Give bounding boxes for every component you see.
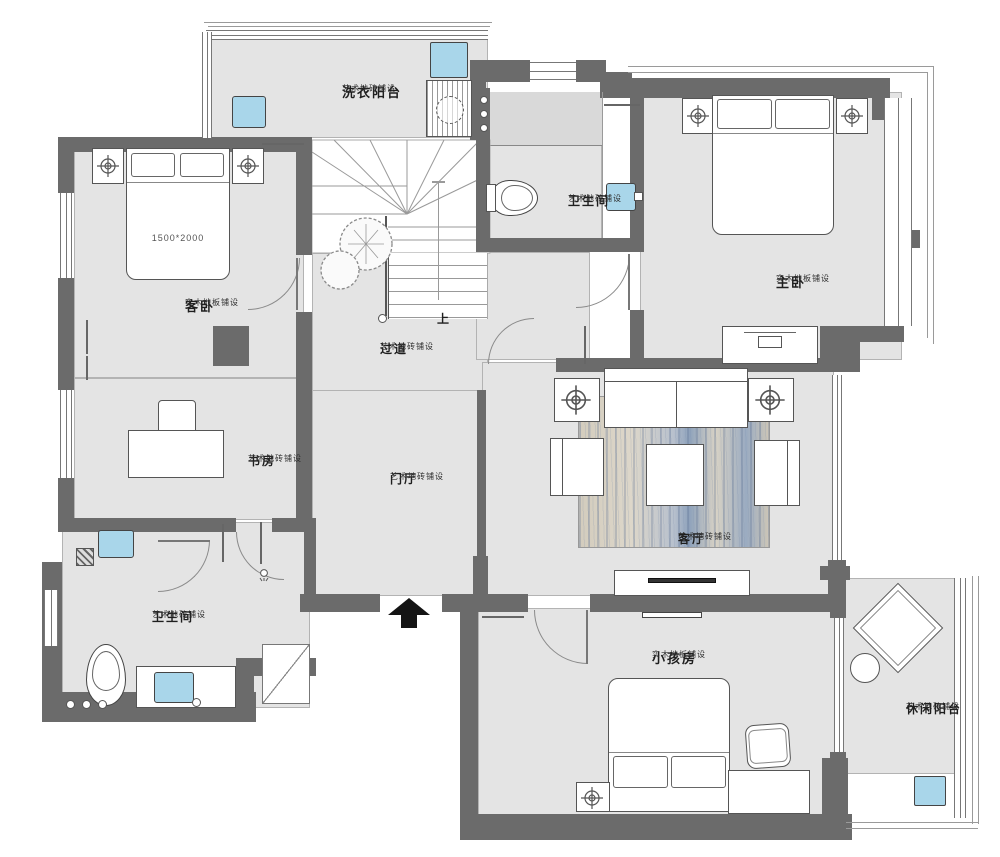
wall xyxy=(476,238,642,252)
shower-head-icon xyxy=(480,124,488,132)
ceiling-lamp-icon xyxy=(840,104,864,128)
window xyxy=(60,193,72,278)
wall xyxy=(473,556,488,596)
toilet-tank xyxy=(486,184,496,212)
window xyxy=(44,590,58,646)
ceiling-lamp-icon xyxy=(236,154,260,178)
frame-line xyxy=(846,828,978,829)
door-arc-master-bedroom xyxy=(576,254,630,308)
wall xyxy=(296,312,312,520)
frame-line xyxy=(933,66,934,344)
frame-line xyxy=(208,26,490,27)
cabinet-cell xyxy=(86,356,88,380)
wall xyxy=(460,814,852,840)
guest-wardrobe xyxy=(262,143,304,249)
bed-size-label: 1500*2000 xyxy=(152,233,205,243)
wall xyxy=(58,137,74,193)
stairs-direction-tick xyxy=(432,181,445,183)
ceiling-lamp-icon xyxy=(560,384,592,416)
basin-icon xyxy=(154,672,194,703)
blanket-line xyxy=(713,133,833,134)
round-stool xyxy=(850,653,880,683)
pillow xyxy=(671,756,726,788)
pillow xyxy=(775,99,830,129)
armchair xyxy=(550,438,604,496)
shower-head-icon xyxy=(480,110,488,118)
frame-line xyxy=(628,66,934,67)
shower-head-icon xyxy=(98,700,107,709)
cabinet xyxy=(260,522,302,564)
bath-top-shower-zone xyxy=(486,92,602,146)
wall xyxy=(820,326,860,372)
foyer-floor xyxy=(312,390,478,596)
frame-line xyxy=(628,72,928,73)
wall xyxy=(484,60,530,82)
frame-line xyxy=(972,576,973,824)
bay-window xyxy=(884,98,912,326)
dresser-line xyxy=(744,332,796,333)
window xyxy=(832,375,842,560)
wall xyxy=(58,330,74,390)
storage-cabinet-row xyxy=(86,320,298,354)
door-leaf xyxy=(628,254,630,310)
cabinet-cell xyxy=(222,524,224,562)
shower-area xyxy=(262,644,310,704)
stairs-rail-end xyxy=(378,314,387,323)
pillow xyxy=(180,153,224,177)
partition-line xyxy=(602,92,603,238)
washing-machine-icon xyxy=(426,80,472,137)
cabinet-cell xyxy=(86,320,88,354)
frame-line xyxy=(846,822,978,823)
floor-drain-icon xyxy=(914,776,946,806)
faucet-icon xyxy=(634,192,643,201)
tv-icon xyxy=(642,612,702,618)
window xyxy=(60,390,72,478)
dresser-stool xyxy=(758,336,782,348)
shower-head-icon xyxy=(256,568,272,584)
wall xyxy=(58,518,236,532)
ceiling-lamp-icon xyxy=(754,384,786,416)
cabinet-cell xyxy=(260,522,262,564)
hatch-block xyxy=(76,548,94,566)
toilet-icon xyxy=(86,644,126,706)
master-wardrobe xyxy=(584,326,720,364)
coffee-table xyxy=(646,444,704,506)
wall xyxy=(822,758,848,818)
window xyxy=(954,578,966,818)
wall xyxy=(460,606,478,818)
entry-arrow-stem xyxy=(401,614,417,628)
sink-icon xyxy=(430,42,468,78)
pillow xyxy=(131,153,175,177)
basin-icon xyxy=(98,530,134,558)
wall xyxy=(58,478,74,522)
wall xyxy=(590,594,842,612)
kids-desk xyxy=(728,770,810,814)
closet xyxy=(604,104,640,152)
storage-cabinet-row xyxy=(86,356,298,380)
pillow xyxy=(717,99,772,129)
shower-head-icon xyxy=(82,700,91,709)
basin-icon xyxy=(232,96,266,128)
tv-cabinet xyxy=(614,570,750,596)
blanket-line xyxy=(127,182,229,183)
floor-plan: 上 xyxy=(0,0,1000,857)
wall xyxy=(300,594,380,612)
frame-line xyxy=(978,576,979,824)
door-leaf xyxy=(586,610,588,664)
wall xyxy=(830,594,846,618)
window xyxy=(206,30,488,40)
desk-chair xyxy=(158,400,196,432)
sliding-door xyxy=(834,618,844,752)
wardrobe-cell xyxy=(482,616,524,618)
tv-icon xyxy=(648,578,716,583)
door-leaf xyxy=(158,540,210,542)
wall xyxy=(828,560,846,596)
stool xyxy=(745,723,792,770)
plant-icon xyxy=(318,216,402,300)
wall xyxy=(856,326,904,342)
cabinet xyxy=(222,524,258,562)
faucet-icon xyxy=(192,698,201,707)
blanket-line xyxy=(609,752,729,753)
desk xyxy=(128,430,224,478)
kids-wardrobe xyxy=(482,616,524,812)
shower-head-icon xyxy=(480,96,488,104)
door-leaf xyxy=(296,258,298,310)
wall xyxy=(58,278,74,332)
shower-head-icon xyxy=(66,700,75,709)
closet-cell xyxy=(604,104,640,106)
armchair xyxy=(754,440,800,506)
wall xyxy=(442,594,528,612)
kids-bed xyxy=(608,678,730,812)
window xyxy=(530,62,576,80)
ceiling-lamp-icon xyxy=(580,786,604,810)
entry-arrow-icon xyxy=(388,598,430,615)
frame-line xyxy=(927,72,928,338)
pillow xyxy=(613,756,668,788)
wall xyxy=(304,520,316,598)
ceiling-lamp-icon xyxy=(686,104,710,128)
frame-line xyxy=(204,22,492,23)
stairs-direction-line xyxy=(438,182,439,300)
wall xyxy=(600,72,632,98)
wardrobe-cell xyxy=(584,326,586,364)
ceiling-lamp-icon xyxy=(96,154,120,178)
sofa xyxy=(604,368,748,428)
wardrobe-cell xyxy=(262,143,304,145)
window xyxy=(202,32,212,138)
